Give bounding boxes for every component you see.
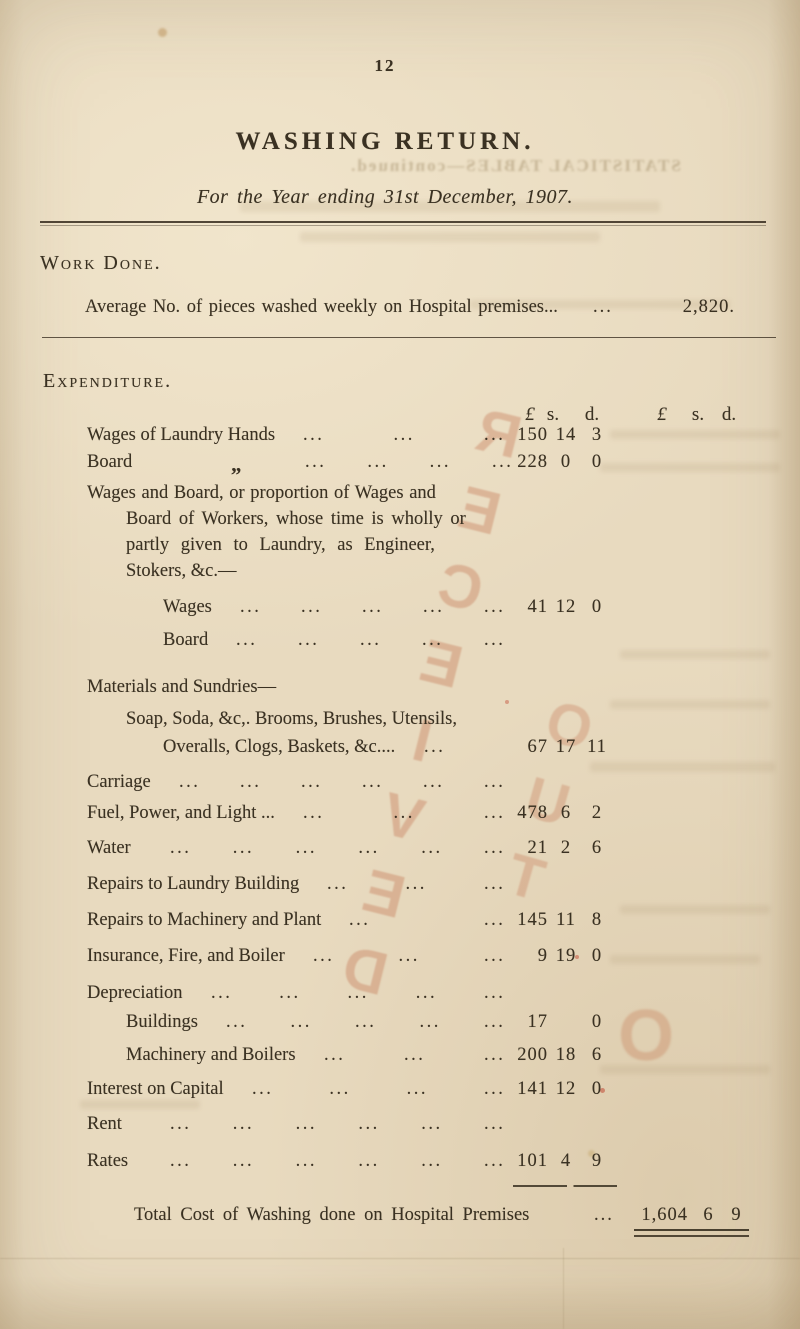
amount-pounds: 21	[486, 838, 548, 859]
document-title: WASHING RETURN.	[0, 128, 770, 156]
row-leader-dots: ...	[236, 630, 257, 651]
ledger-row: Repairs to Laundry Building.........	[0, 874, 800, 900]
ledger-row: Carriage..................	[0, 772, 800, 798]
ledger-row: Water..................2126	[0, 838, 800, 864]
pence-header: d.	[579, 404, 605, 426]
total-label: Total Cost of Washing done on Hospital P…	[134, 1205, 529, 1226]
bleedthrough-line	[563, 1248, 564, 1329]
row-leader-dots: ...	[406, 874, 427, 895]
row-label: Repairs to Machinery and Plant	[87, 910, 321, 931]
amount-pence: 0	[581, 1079, 613, 1100]
row-leader-dots: ...	[407, 1079, 428, 1100]
amount-shillings: 18	[550, 1045, 582, 1066]
row-label: Machinery and Boilers	[126, 1045, 296, 1066]
row-leader-dots: ...	[233, 1114, 254, 1135]
row-label: Wages	[163, 597, 212, 618]
amount-shillings: 2	[550, 838, 582, 859]
row-label: Buildings	[126, 1012, 198, 1033]
row-leader-dots: ...	[296, 1151, 317, 1172]
ledger-row: Wages...............41120	[0, 597, 800, 623]
ledger-row: Wages of Laundry Hands.........150143	[0, 425, 800, 451]
total-double-rule	[634, 1229, 749, 1237]
row-leader-dots: ...	[233, 1151, 254, 1172]
amount-pence: 0	[581, 597, 613, 618]
row-leader-dots: ...	[170, 1151, 191, 1172]
row-leader-dots: ...	[358, 1151, 379, 1172]
row-label: Materials and Sundries—	[87, 677, 276, 698]
row-leader-dots: ...	[394, 803, 415, 824]
row-leader-dots: ...	[421, 1151, 442, 1172]
amount-pence: 8	[581, 910, 613, 931]
row-leader-dots: ...	[484, 983, 505, 1004]
row-label: Board of Workers, whose time is wholly o…	[126, 509, 466, 530]
section-heading-work-done: Work Done.	[40, 252, 162, 275]
amount-pounds: 150	[486, 425, 548, 446]
row-leader-dots: ...	[484, 630, 505, 651]
ledger-row: Rent..................	[0, 1114, 800, 1140]
divider-rule-top	[40, 221, 766, 226]
bleedthrough-line	[0, 1258, 800, 1259]
row-label: Water	[87, 838, 131, 859]
row-leader-dots: ...	[362, 772, 383, 793]
row-leader-dots: ...	[296, 838, 317, 859]
ledger-row: Fuel, Power, and Light ............47862	[0, 803, 800, 829]
amount-pounds: 101	[486, 1151, 548, 1172]
row-leader-dots: ...	[240, 597, 261, 618]
row-label: partly given to Laundry, as Engineer,	[126, 535, 435, 556]
total-row: Total Cost of Washing done on Hospital P…	[0, 1205, 800, 1231]
ledger-row: Insurance, Fire, and Boiler.........9190	[0, 946, 800, 972]
pence-header: d.	[716, 404, 742, 426]
row-leader-dots: ...	[484, 772, 505, 793]
row-label: Interest on Capital	[87, 1079, 224, 1100]
row-leader-dots: ...	[329, 1079, 350, 1100]
row-leader-dots: ...	[327, 874, 348, 895]
row-label: Average No. of pieces washed weekly on H…	[85, 297, 558, 318]
amount-pence: 6	[581, 1045, 613, 1066]
ledger-row: Machinery and Boilers.........200186	[0, 1045, 800, 1071]
money-column-header: £ s. d. £ s. d.	[0, 404, 800, 426]
row-label: Stokers, &c.—	[126, 561, 236, 582]
bleedthrough-smudge	[300, 232, 600, 242]
row-leader-dots: ...	[348, 983, 369, 1004]
row-label: Rent	[87, 1114, 122, 1135]
row-leader-dots: ...	[303, 803, 324, 824]
ledger-row: Rates..................10149	[0, 1151, 800, 1177]
amount-pence: 6	[581, 838, 613, 859]
row-leader-dots: ...	[211, 983, 232, 1004]
amount-pence: 0	[581, 946, 613, 967]
amount-shillings: 6	[550, 803, 582, 824]
amount-pounds: 67	[486, 737, 548, 758]
row-leader-dots: ...	[420, 1012, 441, 1033]
row-leader-dots: ...	[298, 630, 319, 651]
row-label: Insurance, Fire, and Boiler	[87, 946, 285, 967]
pound-sign: £	[648, 404, 676, 426]
row-leader-dots: ...	[313, 946, 334, 967]
row-leader-dots: ...	[423, 772, 444, 793]
row-leader-dots: ...	[399, 946, 420, 967]
row-leader-dots: ...	[301, 772, 322, 793]
amount-shillings: 11	[550, 910, 582, 931]
amount-pence: 0	[581, 452, 613, 473]
amount-shillings: 14	[550, 425, 582, 446]
row-leader-dots: ...	[421, 838, 442, 859]
row-label: Board	[87, 452, 132, 473]
ledger-row: Interest on Capital............141120	[0, 1079, 800, 1105]
row-leader-dots: ...	[170, 838, 191, 859]
shillings-header: s.	[540, 404, 566, 426]
ledger-row: Depreciation...............	[0, 983, 800, 1009]
amount-pounds: 228	[486, 452, 548, 473]
amount-pounds: 141	[486, 1079, 548, 1100]
sum-rule	[513, 1185, 617, 1187]
amount-shillings: 19	[550, 946, 582, 967]
row-leader-dots: ...	[422, 630, 443, 651]
row-leader-dots: ...	[416, 983, 437, 1004]
row-leader-dots: ...	[296, 1114, 317, 1135]
row-leader-dots: ...	[484, 874, 505, 895]
row-label: Overalls, Clogs, Baskets, &c....	[163, 737, 395, 758]
total-amount-shillings: 6	[694, 1205, 722, 1226]
row-leader-dots: ...	[226, 1012, 247, 1033]
ledger-row: Soap, Soda, &c,. Brooms, Brushes, Utensi…	[0, 709, 800, 735]
row-value: 2,820.	[655, 297, 735, 318]
amount-shillings: 12	[550, 1079, 582, 1100]
total-amount-pounds: 1,604	[618, 1205, 688, 1226]
section-heading-expenditure: Expenditure.	[43, 370, 172, 393]
amount-pence: 9	[581, 1151, 613, 1172]
row-leader-dots: ...	[279, 983, 300, 1004]
ledger-row: Board...............	[0, 630, 800, 656]
row-label: Soap, Soda, &c,. Brooms, Brushes, Utensi…	[126, 709, 457, 730]
amount-shillings: 0	[550, 452, 582, 473]
row-leader-dots: ...	[358, 1114, 379, 1135]
amount-pounds: 200	[486, 1045, 548, 1066]
row-leader-dots: ...	[324, 1045, 345, 1066]
row-leader-dots: ...	[404, 1045, 425, 1066]
row-leader-dots: ...	[301, 597, 322, 618]
amount-pounds: 478	[486, 803, 548, 824]
amount-pounds: 9	[486, 946, 548, 967]
row-leader-dots: ...	[179, 772, 200, 793]
ditto-mark: „	[231, 452, 242, 477]
scanned-document-page: STATISTICAL TABLES—continued. RECEIVED O…	[0, 0, 800, 1329]
row-leader-dots: ...	[423, 597, 444, 618]
row-leader-dots: ...	[355, 1012, 376, 1033]
work-done-row: Average No. of pieces washed weekly on H…	[0, 297, 800, 321]
page-number: 12	[0, 56, 770, 76]
row-leader-dots: ...	[360, 630, 381, 651]
row-leader-dots: ...	[240, 772, 261, 793]
row-leader-dots: ...	[362, 597, 383, 618]
row-leader-dots: ...	[394, 425, 415, 446]
bleedthrough-smudge	[590, 762, 775, 772]
amount-shillings: 4	[550, 1151, 582, 1172]
document-subtitle: For the Year ending 31st December, 1907.	[0, 186, 770, 209]
amount-pounds: 17	[486, 1012, 548, 1033]
amount-pence: 3	[581, 425, 613, 446]
ledger-row: Buildings...............170	[0, 1012, 800, 1038]
row-label: Board	[163, 630, 208, 651]
ledger-row: Wages and Board, or proportion of Wages …	[0, 483, 800, 509]
paper-stain	[158, 28, 167, 37]
row-leader-dots: ...	[358, 838, 379, 859]
divider-rule-middle	[42, 337, 776, 338]
row-leader-dots: ...	[170, 1114, 191, 1135]
ledger-row: Materials and Sundries—	[0, 677, 800, 703]
row-leader-dots: ...	[305, 452, 326, 473]
total-amount-pence: 9	[722, 1205, 750, 1226]
row-leader-dots: ...	[252, 1079, 273, 1100]
row-label: Carriage	[87, 772, 151, 793]
amount-pounds: 145	[486, 910, 548, 931]
amount-pence: 2	[581, 803, 613, 824]
row-label: Wages of Laundry Hands	[87, 425, 275, 446]
ledger-row: Repairs to Machinery and Plant......1451…	[0, 910, 800, 936]
amount-shillings: 17	[550, 737, 582, 758]
row-leader-dots: ...	[367, 452, 388, 473]
amount-shillings: 12	[550, 597, 582, 618]
amount-pence: 11	[581, 737, 613, 758]
row-leader-dots: ...	[291, 1012, 312, 1033]
row-leader-dots: ...	[424, 737, 445, 758]
row-leader-dots: ...	[233, 838, 254, 859]
shillings-header: s.	[685, 404, 711, 426]
amount-pence: 0	[581, 1012, 613, 1033]
row-leader-dots: ...	[593, 297, 613, 318]
row-label: Wages and Board, or proportion of Wages …	[87, 483, 436, 504]
row-label: Fuel, Power, and Light ...	[87, 803, 275, 824]
row-label: Repairs to Laundry Building	[87, 874, 299, 895]
ledger-row: Overalls, Clogs, Baskets, &c.......67171…	[0, 737, 800, 763]
row-leader-dots: ...	[484, 1114, 505, 1135]
row-leader-dots: ...	[421, 1114, 442, 1135]
row-leader-dots: ...	[594, 1205, 614, 1226]
row-label: Rates	[87, 1151, 128, 1172]
bleedthrough-heading: STATISTICAL TABLES—continued.	[280, 156, 750, 176]
row-label: Depreciation	[87, 983, 183, 1004]
ledger-row: Board„............22800	[0, 452, 800, 478]
row-leader-dots: ...	[303, 425, 324, 446]
row-leader-dots: ...	[349, 910, 370, 931]
row-leader-dots: ...	[430, 452, 451, 473]
amount-pounds: 41	[486, 597, 548, 618]
